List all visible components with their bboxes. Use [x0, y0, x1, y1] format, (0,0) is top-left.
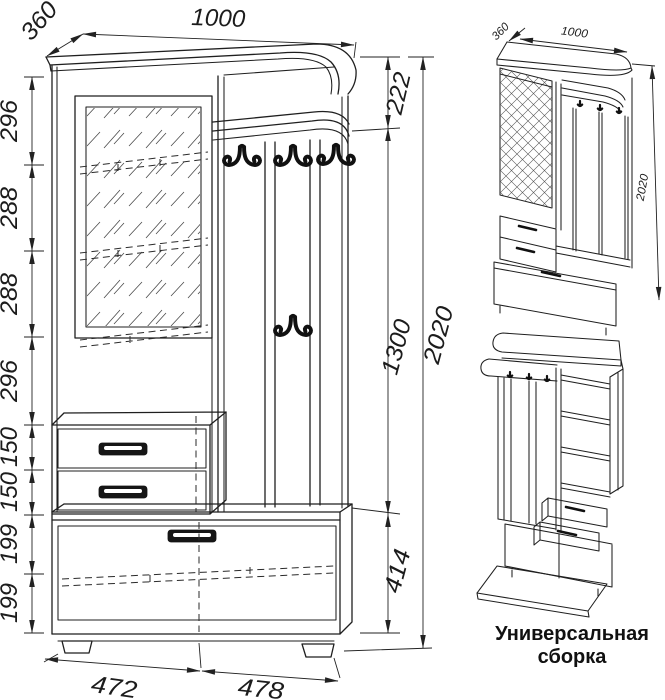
page-background [0, 0, 665, 700]
dim-label-150a: 150 [0, 426, 23, 467]
iso-mirror [500, 68, 552, 208]
caption-line-1: Универсальная [495, 623, 649, 645]
drawer-handle [99, 443, 147, 455]
drawing-line [173, 533, 211, 537]
dim-label-296a: 296 [0, 99, 23, 143]
dim-label-296b: 296 [0, 359, 23, 403]
technical-drawing-page: 1000 360 296 288 288 296 150 150 199 199 [0, 0, 665, 700]
dim-label-199b: 199 [0, 583, 23, 623]
dim-label-199a: 199 [0, 524, 23, 564]
door-handle [168, 530, 216, 542]
drawer-handle [99, 486, 147, 498]
caption-line-2: сборка [538, 646, 608, 668]
drawing-canvas: 1000 360 296 288 288 296 150 150 199 199 [0, 0, 665, 700]
drawing-line [500, 68, 552, 208]
drawing-line [104, 489, 142, 493]
dim-label-288b: 288 [0, 272, 23, 316]
dim-label-150b: 150 [0, 471, 23, 512]
mirror-glass-hatch [87, 108, 200, 326]
mirror-door [75, 96, 212, 347]
dim-label-288a: 288 [0, 186, 23, 230]
dim-label-top-width: 1000 [191, 4, 247, 33]
dim-label-478: 478 [236, 674, 285, 700]
drawing-line [104, 446, 142, 450]
